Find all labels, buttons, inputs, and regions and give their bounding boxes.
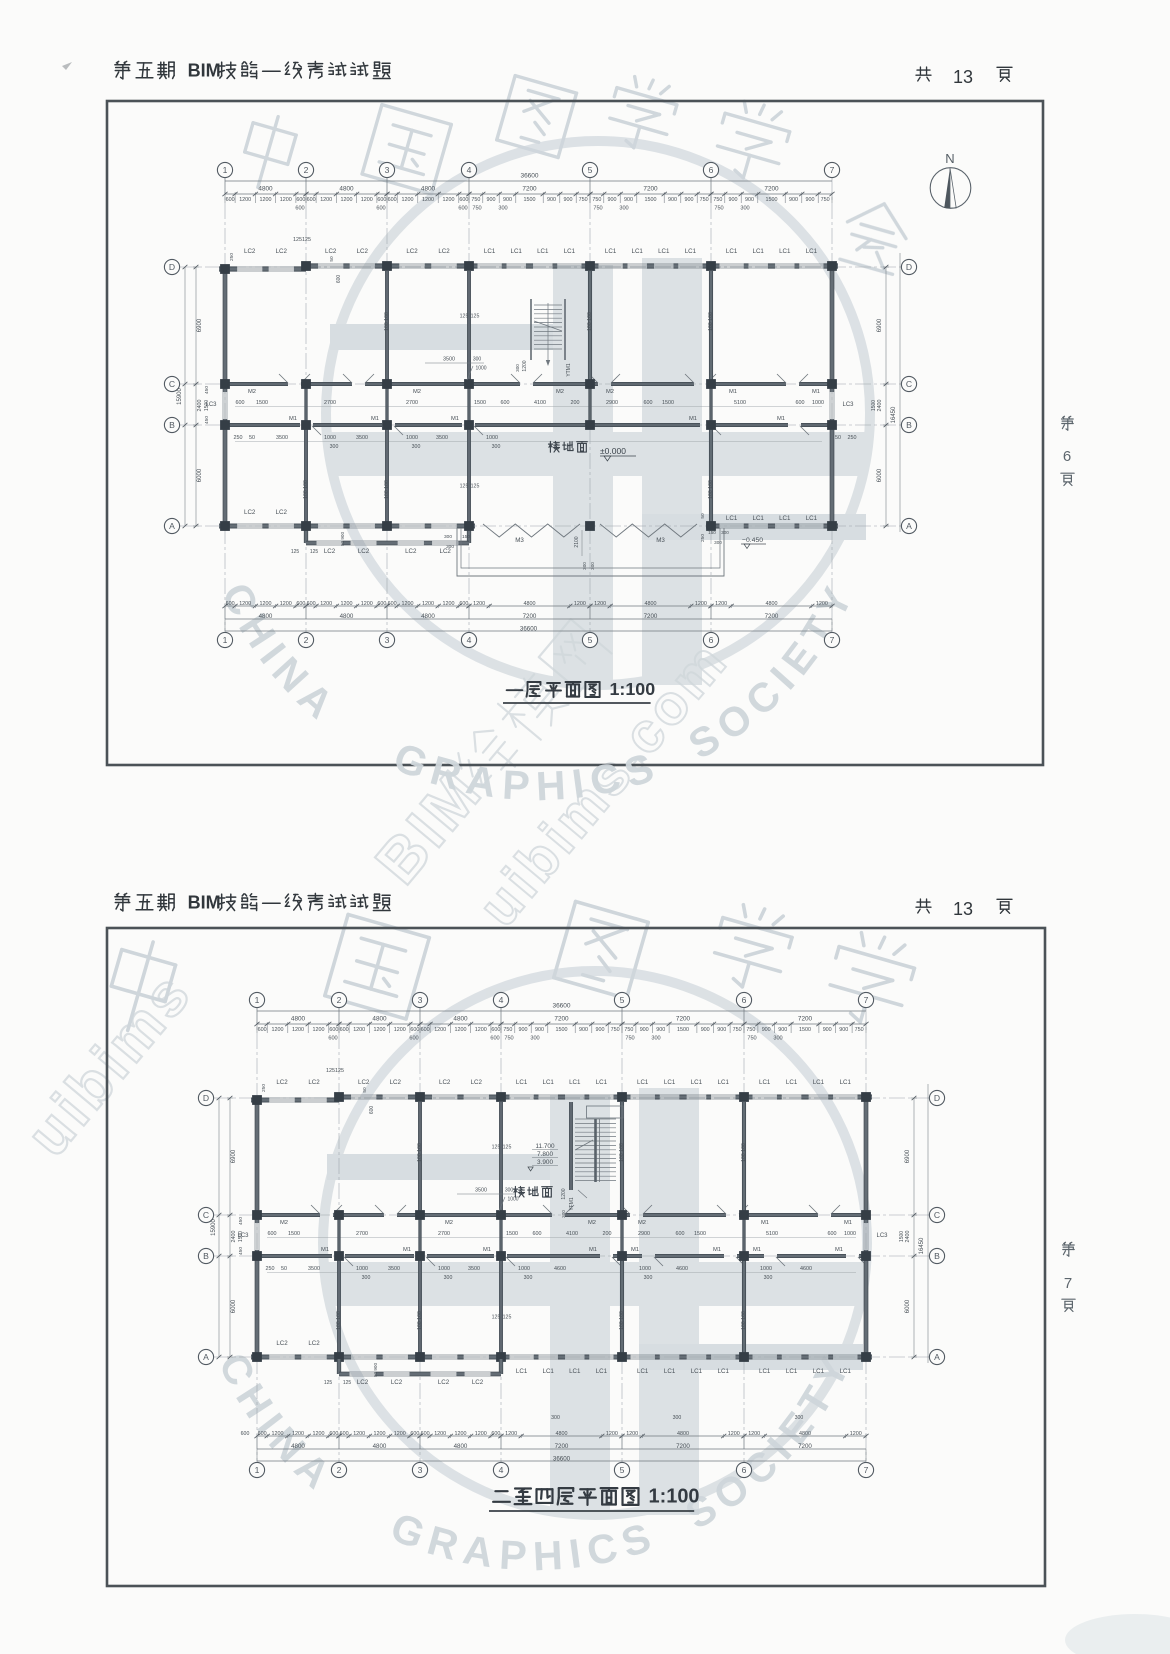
svg-text:5: 5 (620, 995, 625, 1005)
svg-text:M1: M1 (777, 416, 785, 422)
svg-text:750: 750 (504, 1036, 513, 1042)
svg-text:M1: M1 (631, 1247, 639, 1253)
svg-text:7: 7 (1064, 1275, 1072, 1292)
svg-text:150: 150 (708, 530, 716, 535)
svg-text:125: 125 (492, 1315, 501, 1321)
svg-text:100 100: 100 100 (741, 1143, 747, 1162)
svg-text:LC1: LC1 (779, 515, 791, 522)
svg-text:LC1: LC1 (543, 1368, 555, 1375)
svg-text:600: 600 (491, 1027, 500, 1033)
svg-text:LC2: LC2 (472, 1379, 484, 1386)
svg-text:M1: M1 (689, 416, 697, 422)
svg-text:1200: 1200 (422, 197, 434, 203)
svg-text:125: 125 (503, 1145, 512, 1151)
svg-text:3500: 3500 (443, 357, 455, 363)
svg-text:LC1: LC1 (596, 1079, 608, 1086)
svg-text:A: A (203, 1352, 209, 1362)
svg-text:LC1: LC1 (685, 248, 697, 255)
svg-text:300: 300 (795, 1415, 804, 1421)
svg-text:M1: M1 (403, 1247, 411, 1253)
svg-text:1000: 1000 (518, 1266, 530, 1272)
svg-text:M3: M3 (515, 537, 524, 544)
svg-text:3500: 3500 (388, 1266, 400, 1272)
svg-text:1200: 1200 (361, 197, 373, 203)
svg-text:3: 3 (418, 1465, 423, 1475)
svg-text:7200: 7200 (798, 1016, 813, 1023)
svg-text:1500: 1500 (288, 1231, 300, 1237)
svg-text:4: 4 (499, 1465, 504, 1475)
svg-text:D: D (169, 262, 175, 272)
svg-text:750: 750 (713, 197, 722, 203)
svg-text:2900: 2900 (638, 1231, 650, 1237)
svg-text:750: 750 (593, 206, 602, 212)
svg-text:1500: 1500 (694, 1231, 706, 1237)
svg-text:M1: M1 (451, 416, 459, 422)
svg-text:6: 6 (742, 1465, 747, 1475)
svg-text:750: 750 (733, 1027, 742, 1033)
svg-text:750: 750 (472, 206, 481, 212)
svg-text:900: 900 (535, 1027, 544, 1033)
svg-text:250: 250 (848, 435, 857, 441)
svg-text:M1: M1 (844, 1220, 852, 1226)
svg-text:LC1: LC1 (813, 1368, 825, 1375)
svg-text:300: 300 (444, 534, 452, 540)
svg-text:600: 600 (376, 206, 385, 212)
svg-text:250: 250 (700, 534, 706, 542)
svg-text:300: 300 (473, 357, 482, 363)
svg-text:LC1: LC1 (658, 248, 670, 255)
svg-text:300: 300 (524, 1275, 533, 1281)
svg-text:4: 4 (467, 635, 472, 645)
svg-text:2: 2 (304, 635, 309, 645)
svg-text:50: 50 (329, 256, 335, 262)
svg-text:2400: 2400 (197, 400, 203, 412)
svg-text:LC2: LC2 (390, 1079, 402, 1086)
svg-text:125: 125 (471, 314, 480, 320)
svg-text:4100: 4100 (534, 400, 546, 406)
svg-text:6900: 6900 (231, 1149, 237, 1163)
svg-text:7: 7 (830, 165, 835, 175)
svg-text:600: 600 (226, 197, 235, 203)
svg-text:6: 6 (1063, 448, 1071, 465)
svg-text:1500: 1500 (899, 1231, 905, 1242)
svg-text:600: 600 (533, 1231, 542, 1237)
svg-text:250: 250 (261, 1084, 267, 1092)
svg-text:3.900: 3.900 (537, 1159, 553, 1166)
svg-text:D: D (203, 1093, 209, 1103)
svg-text:C: C (906, 379, 912, 389)
svg-text:1:100: 1:100 (610, 679, 656, 699)
svg-text:600: 600 (236, 400, 245, 406)
svg-text:125: 125 (310, 549, 319, 555)
svg-text:1500: 1500 (474, 400, 486, 406)
svg-text:M1: M1 (729, 389, 737, 395)
svg-text:LC1: LC1 (718, 1368, 730, 1375)
svg-text:LC3: LC3 (876, 1233, 888, 1239)
svg-text:300: 300 (764, 1275, 773, 1281)
svg-text:100 100: 100 100 (619, 1311, 625, 1330)
svg-text:900: 900 (806, 197, 815, 203)
svg-text:600: 600 (295, 206, 304, 212)
svg-text:600: 600 (268, 1231, 277, 1237)
svg-text:1500: 1500 (766, 197, 778, 203)
svg-text:125: 125 (460, 314, 469, 320)
svg-text:LC2: LC2 (439, 1079, 451, 1086)
svg-text:1200: 1200 (402, 197, 414, 203)
svg-text:2400: 2400 (905, 1231, 911, 1243)
svg-text:100 100: 100 100 (708, 480, 714, 499)
svg-text:M1: M1 (835, 1247, 843, 1253)
svg-text:LC2: LC2 (308, 1079, 320, 1086)
svg-text:3500: 3500 (468, 1266, 480, 1272)
svg-text:900: 900 (823, 1027, 832, 1033)
svg-text:BIM: BIM (188, 893, 221, 913)
svg-text:±0.000: ±0.000 (600, 446, 626, 456)
svg-text:3500: 3500 (276, 435, 288, 441)
svg-text:LC1: LC1 (806, 248, 818, 255)
svg-text:600: 600 (501, 400, 510, 406)
svg-text:900: 900 (624, 197, 633, 203)
svg-text:LC2: LC2 (405, 548, 417, 555)
svg-text:LC2: LC2 (357, 248, 369, 255)
svg-text:YTM1: YTM1 (566, 363, 572, 377)
svg-text:LC1: LC1 (637, 1368, 649, 1375)
svg-text:1: 1 (255, 1465, 260, 1475)
svg-text:2400: 2400 (877, 400, 883, 412)
svg-text:6900: 6900 (197, 318, 203, 332)
svg-text:3: 3 (385, 635, 390, 645)
svg-text:900: 900 (579, 1027, 588, 1033)
svg-text:B: B (203, 1251, 209, 1261)
svg-text:6000: 6000 (231, 1299, 237, 1313)
svg-text:750: 750 (625, 1036, 634, 1042)
svg-text:7200: 7200 (522, 186, 537, 193)
svg-text:2: 2 (304, 165, 309, 175)
svg-text:300: 300 (505, 1188, 514, 1194)
svg-text:B: B (906, 420, 912, 430)
svg-text:5: 5 (588, 165, 593, 175)
svg-text:3: 3 (385, 165, 390, 175)
svg-text:750: 750 (700, 197, 709, 203)
svg-text:M2: M2 (280, 1220, 288, 1226)
svg-text:1500: 1500 (524, 197, 536, 203)
svg-text:600: 600 (644, 400, 653, 406)
svg-text:1000: 1000 (812, 400, 824, 406)
svg-text:M1: M1 (589, 1247, 597, 1253)
svg-text:2900: 2900 (606, 400, 618, 406)
svg-text:750: 750 (579, 197, 588, 203)
svg-text:1200: 1200 (475, 1027, 487, 1033)
svg-text:LC2: LC2 (357, 1379, 369, 1386)
svg-text:50 900: 50 900 (373, 1363, 378, 1377)
svg-text:900: 900 (717, 1027, 726, 1033)
svg-text:−: − (742, 537, 746, 544)
svg-text:1000: 1000 (507, 1197, 518, 1203)
svg-text:600: 600 (410, 1027, 419, 1033)
svg-text:900: 900 (547, 197, 556, 203)
svg-text:100 100: 100 100 (336, 1311, 342, 1330)
svg-text:M2: M2 (413, 389, 421, 395)
svg-text:M1: M1 (713, 1247, 721, 1253)
svg-text:250: 250 (266, 1266, 275, 1272)
svg-text:125: 125 (503, 1315, 512, 1321)
svg-text:C: C (203, 1210, 209, 1220)
svg-text:2400: 2400 (231, 1231, 237, 1243)
svg-text:M2: M2 (556, 389, 564, 395)
svg-text:300: 300 (444, 1275, 453, 1281)
svg-text:300: 300 (515, 364, 520, 372)
svg-text:13: 13 (953, 899, 973, 919)
svg-text:300: 300 (551, 1415, 560, 1421)
svg-text:7200: 7200 (554, 1016, 569, 1023)
svg-text:LC2: LC2 (276, 509, 288, 516)
svg-text:1000: 1000 (639, 1266, 651, 1272)
svg-text:D: D (906, 262, 912, 272)
svg-text:M2: M2 (588, 1220, 596, 1226)
svg-text:600: 600 (340, 1027, 349, 1033)
svg-text:16450: 16450 (919, 1237, 925, 1254)
svg-text:450: 450 (238, 1217, 244, 1225)
svg-text:2700: 2700 (324, 400, 336, 406)
svg-text:LC3: LC3 (842, 402, 854, 408)
svg-text:LC1: LC1 (569, 1368, 581, 1375)
svg-text:125125: 125125 (293, 237, 311, 243)
svg-text:750: 750 (592, 197, 601, 203)
svg-text:M3: M3 (656, 537, 665, 544)
svg-text:900: 900 (564, 197, 573, 203)
svg-text:1: 1 (255, 995, 260, 1005)
svg-text:450: 450 (238, 1247, 244, 1255)
svg-text:1000: 1000 (324, 435, 336, 441)
svg-text:M1: M1 (753, 1247, 761, 1253)
svg-text:LC1: LC1 (632, 248, 644, 255)
svg-text:600: 600 (258, 1027, 267, 1033)
svg-text:1200: 1200 (313, 1027, 325, 1033)
svg-text:LC1: LC1 (753, 248, 765, 255)
svg-text:100 100: 100 100 (619, 1143, 625, 1162)
svg-text:CHINA: CHINA (213, 576, 348, 733)
svg-text:600: 600 (796, 400, 805, 406)
svg-text:1200: 1200 (292, 1027, 304, 1033)
svg-text:1200: 1200 (394, 1027, 406, 1033)
svg-text:LC2: LC2 (276, 1340, 288, 1347)
svg-text:125: 125 (492, 1145, 501, 1151)
svg-text:900: 900 (745, 197, 754, 203)
svg-text:1200: 1200 (341, 197, 353, 203)
svg-text:LC1: LC1 (786, 1079, 798, 1086)
svg-text:125: 125 (471, 484, 480, 490)
svg-text:1200: 1200 (239, 197, 251, 203)
svg-text:1: 1 (223, 165, 228, 175)
svg-text:LC2: LC2 (471, 1079, 483, 1086)
svg-text:7.800: 7.800 (537, 1151, 553, 1158)
svg-text:4800: 4800 (421, 186, 436, 193)
svg-text:300: 300 (412, 444, 421, 450)
svg-text:1: 1 (223, 635, 228, 645)
svg-text:36600: 36600 (552, 1003, 570, 1010)
svg-text:LC1: LC1 (484, 248, 496, 255)
svg-text:1500: 1500 (662, 400, 674, 406)
svg-text:600: 600 (409, 1036, 418, 1042)
svg-text:1500: 1500 (256, 400, 268, 406)
svg-text:M2: M2 (445, 1220, 453, 1226)
svg-text:4: 4 (467, 165, 472, 175)
svg-text:LC1: LC1 (511, 248, 523, 255)
svg-text:600: 600 (369, 1106, 375, 1115)
svg-text:7: 7 (864, 1465, 869, 1475)
svg-text:600: 600 (458, 206, 467, 212)
svg-text:1200: 1200 (561, 1188, 567, 1199)
svg-text:LC2: LC2 (244, 509, 256, 516)
svg-text:600: 600 (307, 197, 316, 203)
svg-text:7: 7 (864, 995, 869, 1005)
svg-text:125: 125 (324, 1380, 333, 1386)
svg-text:LC2: LC2 (325, 248, 337, 255)
svg-text:LC1: LC1 (516, 1079, 528, 1086)
svg-text:LC1: LC1 (537, 248, 549, 255)
svg-text:1000: 1000 (486, 435, 498, 441)
svg-text:4100: 4100 (566, 1231, 578, 1237)
svg-text:4800: 4800 (258, 186, 273, 193)
svg-text:300: 300 (644, 1275, 653, 1281)
svg-text:M1: M1 (321, 1247, 329, 1253)
svg-text:BIM: BIM (188, 61, 221, 81)
svg-text:600: 600 (336, 275, 342, 284)
svg-text:300: 300 (498, 206, 507, 212)
svg-text:750: 750 (471, 197, 480, 203)
svg-text:900: 900 (596, 1027, 605, 1033)
svg-text:1500: 1500 (871, 400, 877, 411)
svg-text:A: A (906, 521, 912, 531)
svg-text:LC1: LC1 (637, 1079, 649, 1086)
svg-text:uibims: uibims (14, 959, 205, 1169)
svg-text:1200: 1200 (320, 197, 332, 203)
svg-text:300: 300 (651, 1036, 660, 1042)
svg-text:N: N (945, 151, 954, 166)
svg-text:900: 900 (640, 1027, 649, 1033)
svg-text:B: B (169, 420, 175, 430)
svg-text:3: 3 (418, 995, 423, 1005)
svg-text:100 100: 100 100 (417, 1311, 423, 1330)
svg-text:900: 900 (778, 1027, 787, 1033)
svg-text:1:100: 1:100 (649, 1486, 700, 1508)
svg-text:600: 600 (377, 197, 386, 203)
svg-text:LC2: LC2 (358, 548, 370, 555)
svg-text:B: B (934, 1251, 940, 1261)
svg-text:1200: 1200 (280, 197, 292, 203)
svg-text:M2: M2 (606, 389, 614, 395)
svg-text:4600: 4600 (554, 1266, 566, 1272)
svg-text:900: 900 (839, 1027, 848, 1033)
svg-text:150: 150 (462, 534, 470, 540)
svg-text:200: 200 (571, 400, 580, 406)
svg-text:7200: 7200 (764, 186, 779, 193)
svg-text:2: 2 (337, 1465, 342, 1475)
svg-text:600: 600 (329, 1027, 338, 1033)
svg-text:LC1: LC1 (605, 248, 617, 255)
svg-text:1200: 1200 (455, 1027, 467, 1033)
svg-text:100 100: 100 100 (303, 480, 309, 499)
svg-text:4800: 4800 (453, 1016, 468, 1023)
svg-text:LC1: LC1 (691, 1368, 703, 1375)
svg-text:900: 900 (729, 197, 738, 203)
svg-text:2700: 2700 (356, 1231, 368, 1237)
svg-text:5: 5 (588, 635, 593, 645)
svg-text:LC3: LC3 (237, 1233, 249, 1239)
svg-text:125125: 125125 (326, 1068, 344, 1074)
svg-text:D: D (934, 1093, 940, 1103)
svg-text:600: 600 (828, 1231, 837, 1237)
svg-text:LC1: LC1 (664, 1079, 676, 1086)
svg-text:3500: 3500 (356, 435, 368, 441)
svg-text:300: 300 (773, 1036, 782, 1042)
svg-text:1200: 1200 (374, 1027, 386, 1033)
svg-text:300: 300 (362, 1275, 371, 1281)
svg-text:900: 900 (701, 1027, 710, 1033)
svg-text:450: 450 (204, 416, 210, 424)
svg-text:4: 4 (499, 995, 504, 1005)
svg-text:100 100: 100 100 (417, 1143, 423, 1162)
svg-text:LC2: LC2 (406, 248, 418, 255)
svg-text:600: 600 (459, 197, 468, 203)
svg-text:LC1: LC1 (786, 1368, 798, 1375)
svg-text:6900: 6900 (905, 1149, 911, 1163)
svg-text:5: 5 (620, 1465, 625, 1475)
svg-text:36600: 36600 (520, 173, 538, 180)
svg-text:6000: 6000 (905, 1299, 911, 1313)
svg-text:2700: 2700 (438, 1231, 450, 1237)
svg-text:750: 750 (746, 1027, 755, 1033)
svg-text:1000: 1000 (438, 1266, 450, 1272)
svg-text:600: 600 (676, 1231, 685, 1237)
svg-text:C: C (934, 1210, 940, 1220)
svg-text:1500: 1500 (556, 1027, 568, 1033)
svg-text:LC1: LC1 (840, 1079, 852, 1086)
svg-text:LC1: LC1 (840, 1368, 852, 1375)
svg-text:1200: 1200 (434, 1027, 446, 1033)
svg-text:750: 750 (624, 1027, 633, 1033)
svg-text:125: 125 (343, 1380, 352, 1386)
svg-text:LC1: LC1 (664, 1368, 676, 1375)
svg-text:LC1: LC1 (543, 1079, 555, 1086)
svg-text:900: 900 (668, 197, 677, 203)
svg-text:4600: 4600 (800, 1266, 812, 1272)
svg-text:900: 900 (519, 1027, 528, 1033)
svg-text:LC1: LC1 (691, 1079, 703, 1086)
svg-text:7: 7 (830, 635, 835, 645)
svg-text:300: 300 (714, 540, 722, 545)
svg-text:LC1: LC1 (753, 515, 765, 522)
svg-text:LC1: LC1 (726, 515, 738, 522)
svg-text:300: 300 (492, 444, 501, 450)
svg-text:LC2: LC2 (358, 1079, 370, 1086)
svg-text:6000: 6000 (197, 468, 203, 482)
svg-text:3500: 3500 (308, 1266, 320, 1272)
svg-text:M2: M2 (248, 389, 256, 395)
svg-text:750: 750 (747, 1036, 756, 1042)
svg-text:300: 300 (590, 562, 595, 570)
svg-text:CHINA: CHINA (210, 1346, 345, 1503)
svg-text:36600: 36600 (520, 626, 538, 633)
svg-text:50: 50 (835, 435, 841, 441)
svg-text:A: A (934, 1352, 940, 1362)
svg-text:M1: M1 (371, 416, 379, 422)
svg-text:LC1: LC1 (569, 1079, 581, 1086)
svg-text:1200: 1200 (260, 197, 272, 203)
svg-text:300: 300 (530, 1036, 539, 1042)
svg-text:900: 900 (762, 1027, 771, 1033)
svg-text:LC1: LC1 (806, 515, 818, 522)
